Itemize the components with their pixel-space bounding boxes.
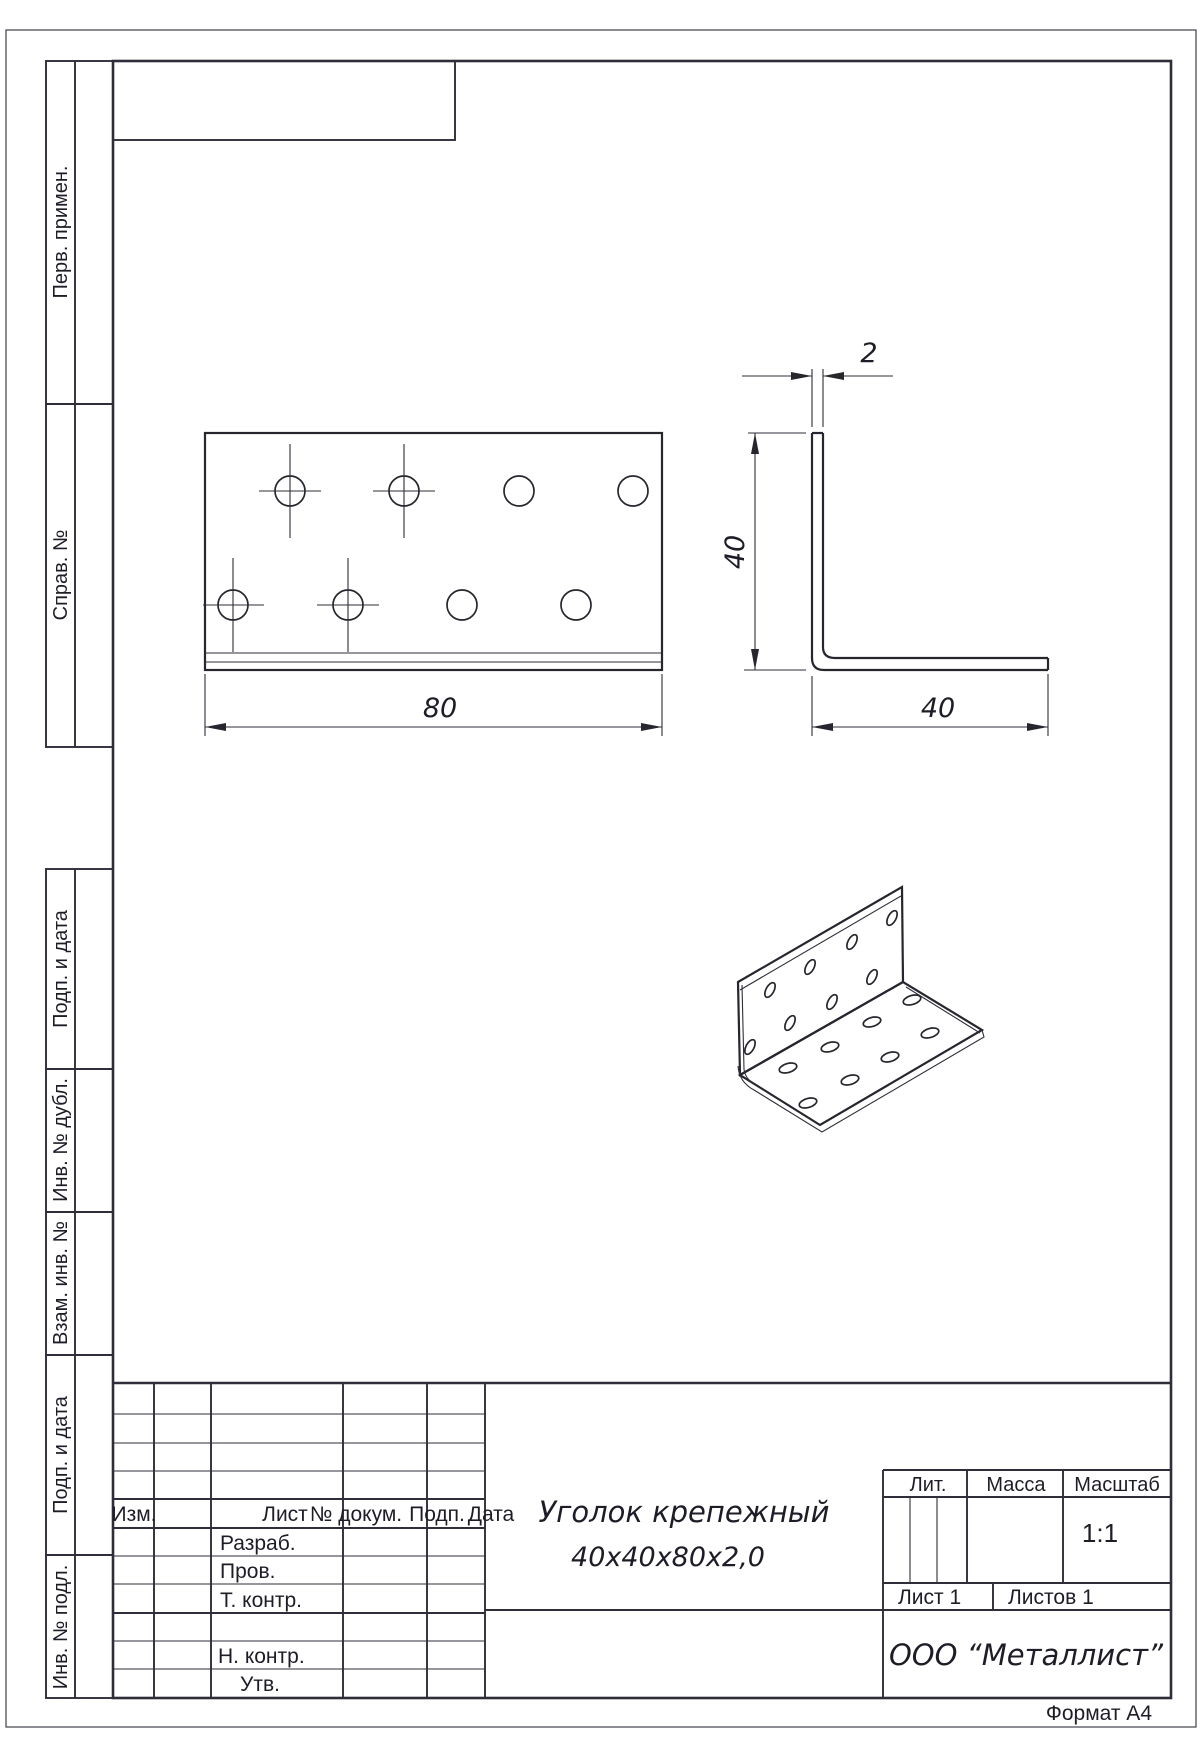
dim-text-40-horizontal: 40 (921, 693, 955, 724)
rev-col-data: Дата (468, 1503, 515, 1526)
rev-col-izm: Изм. (112, 1503, 157, 1526)
dimension-2: 2 (742, 338, 893, 427)
dim-text-80: 80 (423, 693, 457, 724)
dimension-40-vertical: 40 (720, 433, 806, 670)
dim-text-2: 2 (860, 338, 877, 369)
massa-label: Масса (986, 1474, 1046, 1496)
side-view: 2 40 40 (720, 338, 1048, 736)
margin-label-podp-i-data-1: Подп. и дата (50, 909, 72, 1028)
dim-text-40-vertical: 40 (720, 535, 751, 569)
top-extra-box (113, 61, 455, 140)
company-name: ООО “Металлист” (889, 1638, 1164, 1672)
rev-col-dokum: № докум. (310, 1503, 402, 1526)
margin-stamp-column: Перв. примен. Справ. № Подп. и дата Инв.… (46, 61, 113, 1698)
dimension-80: 80 (205, 674, 662, 736)
title-block: Изм. Лист № докум. Подп. Дата Разраб. Пр… (112, 1383, 1171, 1698)
front-view: 80 (203, 433, 662, 736)
role-t-kontr: Т. контр. (220, 1589, 302, 1612)
masshtab-label: Масштаб (1074, 1474, 1160, 1496)
role-prov: Пров. (220, 1560, 275, 1583)
lit-label: Лит. (910, 1474, 947, 1496)
isometric-holes-vertical-face (743, 909, 900, 1056)
list-value: Лист 1 (898, 1586, 961, 1609)
part-name-line2: 40х40х80х2,0 (571, 1542, 765, 1573)
margin-label-podp-i-data-2: Подп. и дата (50, 1395, 72, 1514)
drawing-sheet: Перв. примен. Справ. № Подп. и дата Инв.… (0, 0, 1200, 1760)
rev-col-list: Лист (262, 1503, 308, 1526)
role-razrab: Разраб. (220, 1532, 296, 1555)
format-note: Формат А4 (1046, 1702, 1152, 1725)
scale-value: 1:1 (1082, 1518, 1118, 1548)
margin-label-perv-primen: Перв. примен. (50, 166, 72, 299)
margin-label-vzam-inv-no: Взам. инв. № (50, 1221, 72, 1345)
front-view-holes (203, 444, 648, 652)
margin-label-sprav-no: Справ. № (50, 530, 72, 621)
part-name-line1: Уголок крепежный (538, 1495, 829, 1529)
page-borders (6, 30, 1196, 1727)
margin-label-inv-no-podl: Инв. № подл. (50, 1565, 72, 1690)
dimension-40-horizontal: 40 (812, 674, 1048, 736)
isometric-view (738, 887, 984, 1132)
isometric-holes-horizontal-face (778, 993, 940, 1110)
role-n-kontr: Н. контр. (218, 1645, 305, 1668)
rev-col-podp: Подп. (409, 1503, 465, 1526)
listov-value: Листов 1 (1008, 1586, 1094, 1609)
gost-drawing: Перв. примен. Справ. № Подп. и дата Инв.… (0, 0, 1200, 1760)
margin-label-inv-no-dubl: Инв. № дубл. (50, 1078, 72, 1202)
role-utv: Утв. (240, 1673, 280, 1696)
